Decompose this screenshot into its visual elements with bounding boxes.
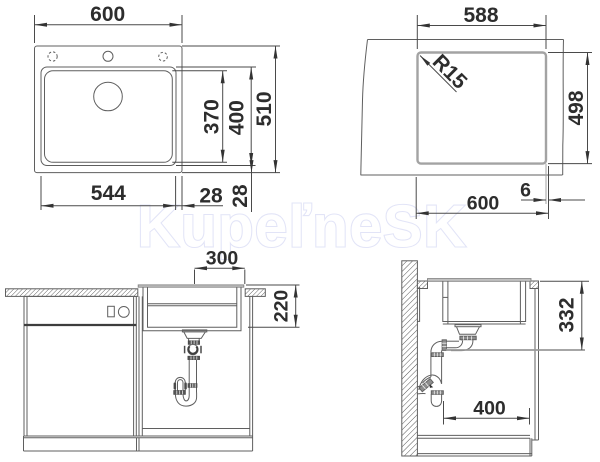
svg-text:588: 588	[463, 4, 498, 27]
svg-text:600: 600	[90, 3, 125, 26]
svg-text:510: 510	[253, 91, 276, 126]
svg-text:400: 400	[226, 100, 249, 135]
svg-text:KupeľneSK: KupeľneSK	[137, 194, 467, 260]
svg-text:498: 498	[565, 90, 588, 125]
svg-text:400: 400	[473, 398, 506, 420]
svg-text:28: 28	[199, 185, 223, 208]
svg-text:220: 220	[271, 290, 293, 323]
svg-text:6: 6	[520, 180, 531, 202]
svg-text:600: 600	[467, 193, 500, 215]
svg-text:370: 370	[201, 99, 224, 134]
svg-text:544: 544	[91, 182, 126, 205]
svg-text:332: 332	[556, 297, 579, 332]
svg-text:300: 300	[206, 248, 239, 270]
svg-text:R15: R15	[428, 50, 472, 94]
svg-text:28: 28	[229, 184, 252, 208]
